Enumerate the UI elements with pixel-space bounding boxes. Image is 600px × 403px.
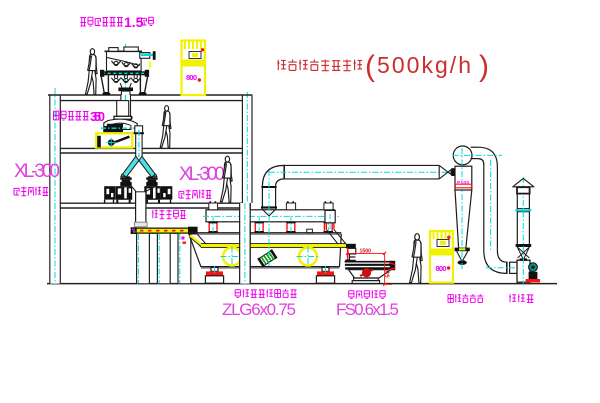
svg-text:1500: 1500: [360, 248, 372, 254]
svg-text:545: 545: [386, 269, 392, 278]
svg-text:ZLG6x0.75: ZLG6x0.75: [222, 300, 296, 319]
svg-text:): ): [479, 50, 489, 83]
svg-text:500kg/h: 500kg/h: [377, 52, 471, 78]
svg-text:800: 800: [436, 264, 447, 273]
svg-text:FS0.6x1.5: FS0.6x1.5: [336, 300, 399, 319]
svg-text:XL-300: XL-300: [179, 164, 225, 185]
svg-text:350: 350: [90, 109, 105, 124]
svg-text:P100: P100: [457, 180, 469, 186]
svg-text:(: (: [365, 50, 375, 83]
svg-text:1.5: 1.5: [124, 14, 144, 30]
svg-text:800: 800: [186, 73, 197, 82]
svg-text:XL-300: XL-300: [14, 161, 60, 182]
